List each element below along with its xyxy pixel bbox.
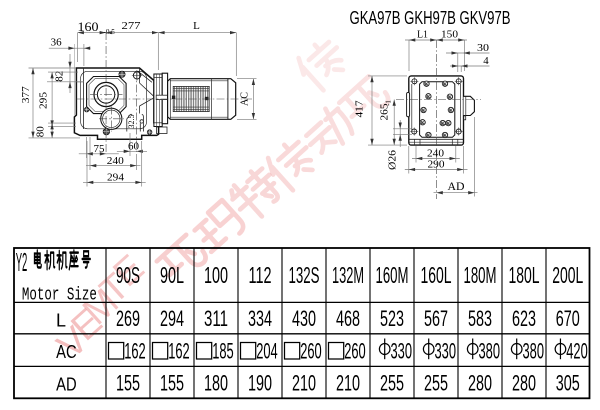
svg-text:90S: 90S [116, 262, 140, 288]
svg-text:377: 377 [21, 86, 32, 103]
svg-text:AD: AD [448, 181, 465, 193]
svg-text:AC: AC [56, 341, 77, 362]
svg-text:260: 260 [300, 338, 322, 363]
svg-text:112: 112 [249, 262, 272, 288]
svg-text:AC: AC [238, 92, 250, 106]
svg-text:4: 4 [483, 55, 489, 67]
svg-text:260: 260 [344, 338, 366, 363]
svg-text:295: 295 [38, 92, 49, 109]
svg-text:210: 210 [336, 371, 360, 396]
svg-text:185: 185 [212, 338, 234, 363]
svg-text:155: 155 [116, 371, 140, 396]
svg-text:567: 567 [424, 306, 448, 331]
svg-text:AD: AD [56, 374, 77, 395]
svg-text:132S: 132S [289, 262, 320, 288]
svg-text:623: 623 [512, 306, 536, 331]
svg-text:294: 294 [160, 306, 184, 331]
svg-text:305: 305 [556, 371, 580, 396]
svg-text:-1: -1 [384, 100, 392, 106]
svg-text:330: 330 [391, 338, 413, 363]
svg-text:160M: 160M [376, 262, 409, 288]
svg-text:80: 80 [36, 126, 47, 137]
svg-text:132M: 132M [332, 262, 364, 288]
svg-text:670: 670 [556, 306, 580, 331]
svg-text:32.5: 32.5 [126, 115, 136, 129]
svg-text:330: 330 [435, 338, 457, 363]
svg-text:210: 210 [292, 371, 316, 396]
svg-text:150: 150 [441, 29, 458, 41]
svg-text:523: 523 [380, 306, 404, 331]
svg-text:380: 380 [523, 338, 545, 363]
svg-text:190: 190 [248, 371, 272, 396]
svg-text:430: 430 [292, 306, 316, 331]
svg-text:36: 36 [51, 37, 62, 48]
svg-text:269: 269 [116, 306, 140, 331]
svg-text:160L: 160L [421, 262, 452, 288]
svg-text:30: 30 [477, 42, 489, 54]
svg-text:180M: 180M [464, 262, 497, 288]
svg-text:311: 311 [204, 306, 228, 331]
svg-text:Motor Size: Motor Size [22, 284, 97, 305]
svg-text:277: 277 [122, 20, 142, 32]
svg-text:160: 160 [78, 20, 99, 34]
svg-text:290: 290 [428, 158, 445, 170]
svg-text:82: 82 [55, 71, 66, 82]
svg-text:240: 240 [107, 155, 124, 167]
svg-text:75: 75 [94, 144, 105, 155]
svg-text:180L: 180L [509, 262, 540, 288]
svg-text:180: 180 [204, 371, 228, 396]
svg-text:417: 417 [354, 100, 366, 118]
svg-text:294: 294 [107, 172, 125, 184]
svg-text:162: 162 [124, 338, 146, 363]
svg-text:420: 420 [566, 338, 588, 363]
svg-text:L: L [193, 20, 200, 32]
svg-text:162: 162 [168, 338, 190, 363]
svg-text:255: 255 [424, 371, 448, 396]
svg-text:100: 100 [204, 262, 228, 288]
svg-text:L1: L1 [417, 29, 428, 41]
svg-text:Ø26: Ø26 [387, 149, 399, 170]
svg-text:90L: 90L [160, 262, 184, 288]
svg-text:204: 204 [256, 338, 278, 363]
svg-text:60: 60 [128, 142, 139, 153]
svg-text:Y2: Y2 [16, 247, 28, 277]
svg-text:155: 155 [160, 371, 184, 396]
svg-text:334: 334 [248, 306, 272, 331]
svg-text:GKA97B GKH97B GKV97B: GKA97B GKH97B GKV97B [350, 7, 511, 28]
svg-text:200L: 200L [552, 262, 583, 288]
svg-text:380: 380 [479, 338, 501, 363]
svg-text:468: 468 [336, 306, 360, 331]
svg-text:255: 255 [380, 371, 404, 396]
svg-text:L: L [56, 311, 66, 331]
svg-text:280: 280 [512, 371, 536, 396]
svg-text:583: 583 [468, 306, 492, 331]
svg-text:280: 280 [468, 371, 492, 396]
